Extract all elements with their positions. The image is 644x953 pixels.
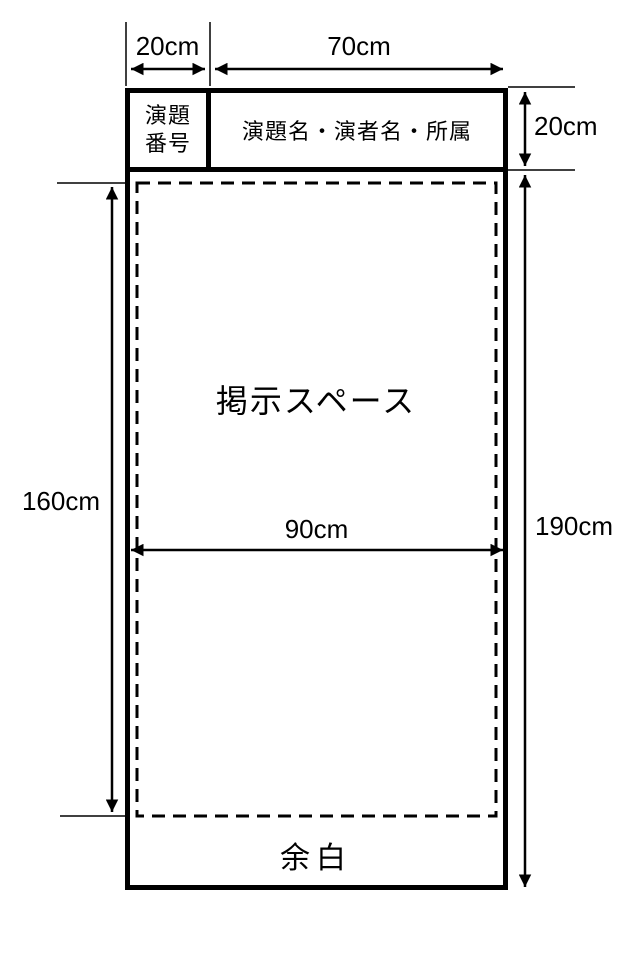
board-outline bbox=[125, 88, 508, 890]
dim-label-board-total-width: 90cm bbox=[128, 514, 505, 545]
header-bottom-border bbox=[125, 167, 508, 172]
dim-label-board-total-height: 190cm bbox=[535, 511, 643, 542]
number-cell-line1: 演題 bbox=[145, 102, 191, 130]
dim-label-header-height: 20cm bbox=[534, 111, 642, 142]
display-space-label: 掲示スペース bbox=[134, 376, 498, 422]
dim-label-display-area-height: 160cm bbox=[0, 486, 100, 517]
dim-label-number-cell-width: 20cm bbox=[125, 31, 210, 62]
title-cell-label: 演題名・演者名・所属 bbox=[242, 114, 472, 146]
header-number-cell: 演題 番号 bbox=[130, 93, 206, 167]
margin-label: 余白 bbox=[134, 833, 498, 877]
dim-label-title-cell-width: 70cm bbox=[210, 31, 508, 62]
number-cell-line2: 番号 bbox=[145, 130, 191, 158]
header-title-cell: 演題名・演者名・所属 bbox=[211, 93, 503, 167]
poster-board-dimension-diagram: 演題 番号 演題名・演者名・所属 掲示スペース 余白 20cm 70cm 20c… bbox=[0, 0, 644, 953]
